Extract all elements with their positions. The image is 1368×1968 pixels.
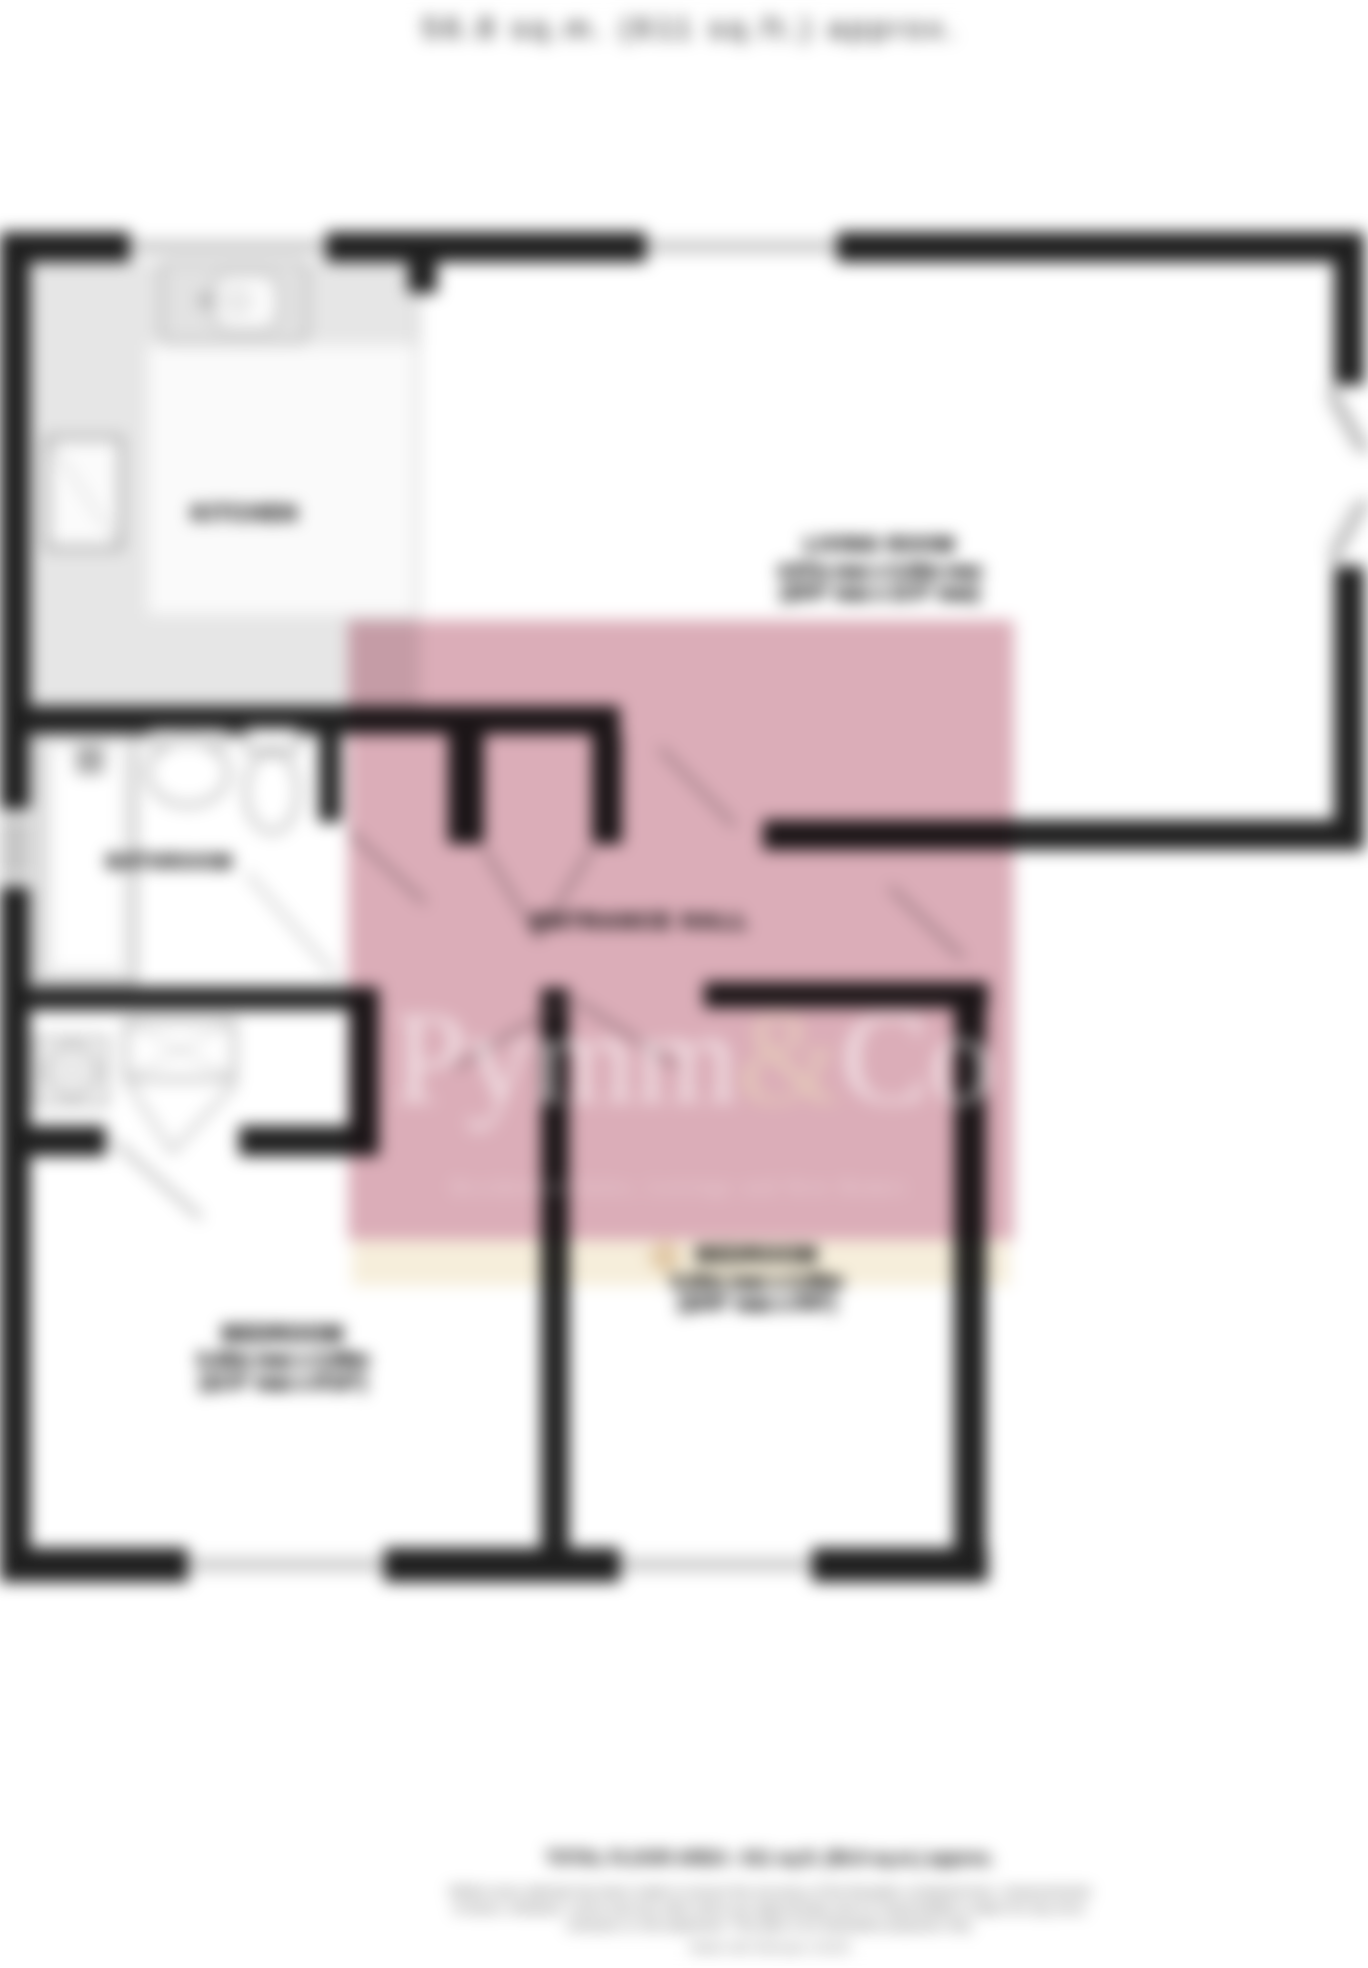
svg-text:of doors, windows, rooms and a: of doors, windows, rooms and any other i… — [453, 1901, 1087, 1916]
svg-text:3.43m max x 2.69m: 3.43m max x 2.69m — [197, 1350, 369, 1371]
svg-text:Made with Metropix ©2025: Made with Metropix ©2025 — [690, 1940, 851, 1955]
svg-text:Whilst every attempt has been: Whilst every attempt has been made to en… — [449, 1884, 1092, 1899]
svg-text:LIVING ROOM: LIVING ROOM — [805, 534, 956, 556]
svg-text:4.57m max x 3.43m max: 4.57m max x 3.43m max — [778, 561, 982, 581]
svg-text:BATHROOM: BATHROOM — [107, 852, 233, 873]
svg-text:(15'0" max x 11'3" max): (15'0" max x 11'3" max) — [781, 583, 980, 603]
svg-text:TOTAL FLOOR AREA : 611 sq.ft.: TOTAL FLOOR AREA : 611 sq.ft. (56.8 sq.m… — [546, 1848, 994, 1868]
svg-text:omission or mis-statement. Thi: omission or mis-statement. This plan is … — [567, 1918, 974, 1933]
svg-text:56.8 sq.m. (611 sq.ft.) approx: 56.8 sq.m. (611 sq.ft.) approx. — [422, 12, 959, 45]
svg-text:KITCHEN: KITCHEN — [191, 502, 298, 525]
svg-text:BEDROOM: BEDROOM — [222, 1321, 344, 1346]
svg-text:Pymm&Co: Pymm&Co — [393, 984, 995, 1131]
svg-text:(10'6" max x 9'8"): (10'6" max x 9'8") — [679, 1294, 836, 1315]
svg-text:Residential Sales, Lettings an: Residential Sales, Lettings and New Home… — [452, 1177, 909, 1198]
svg-text:(11'3" max x 8'10"): (11'3" max x 8'10") — [200, 1373, 367, 1394]
